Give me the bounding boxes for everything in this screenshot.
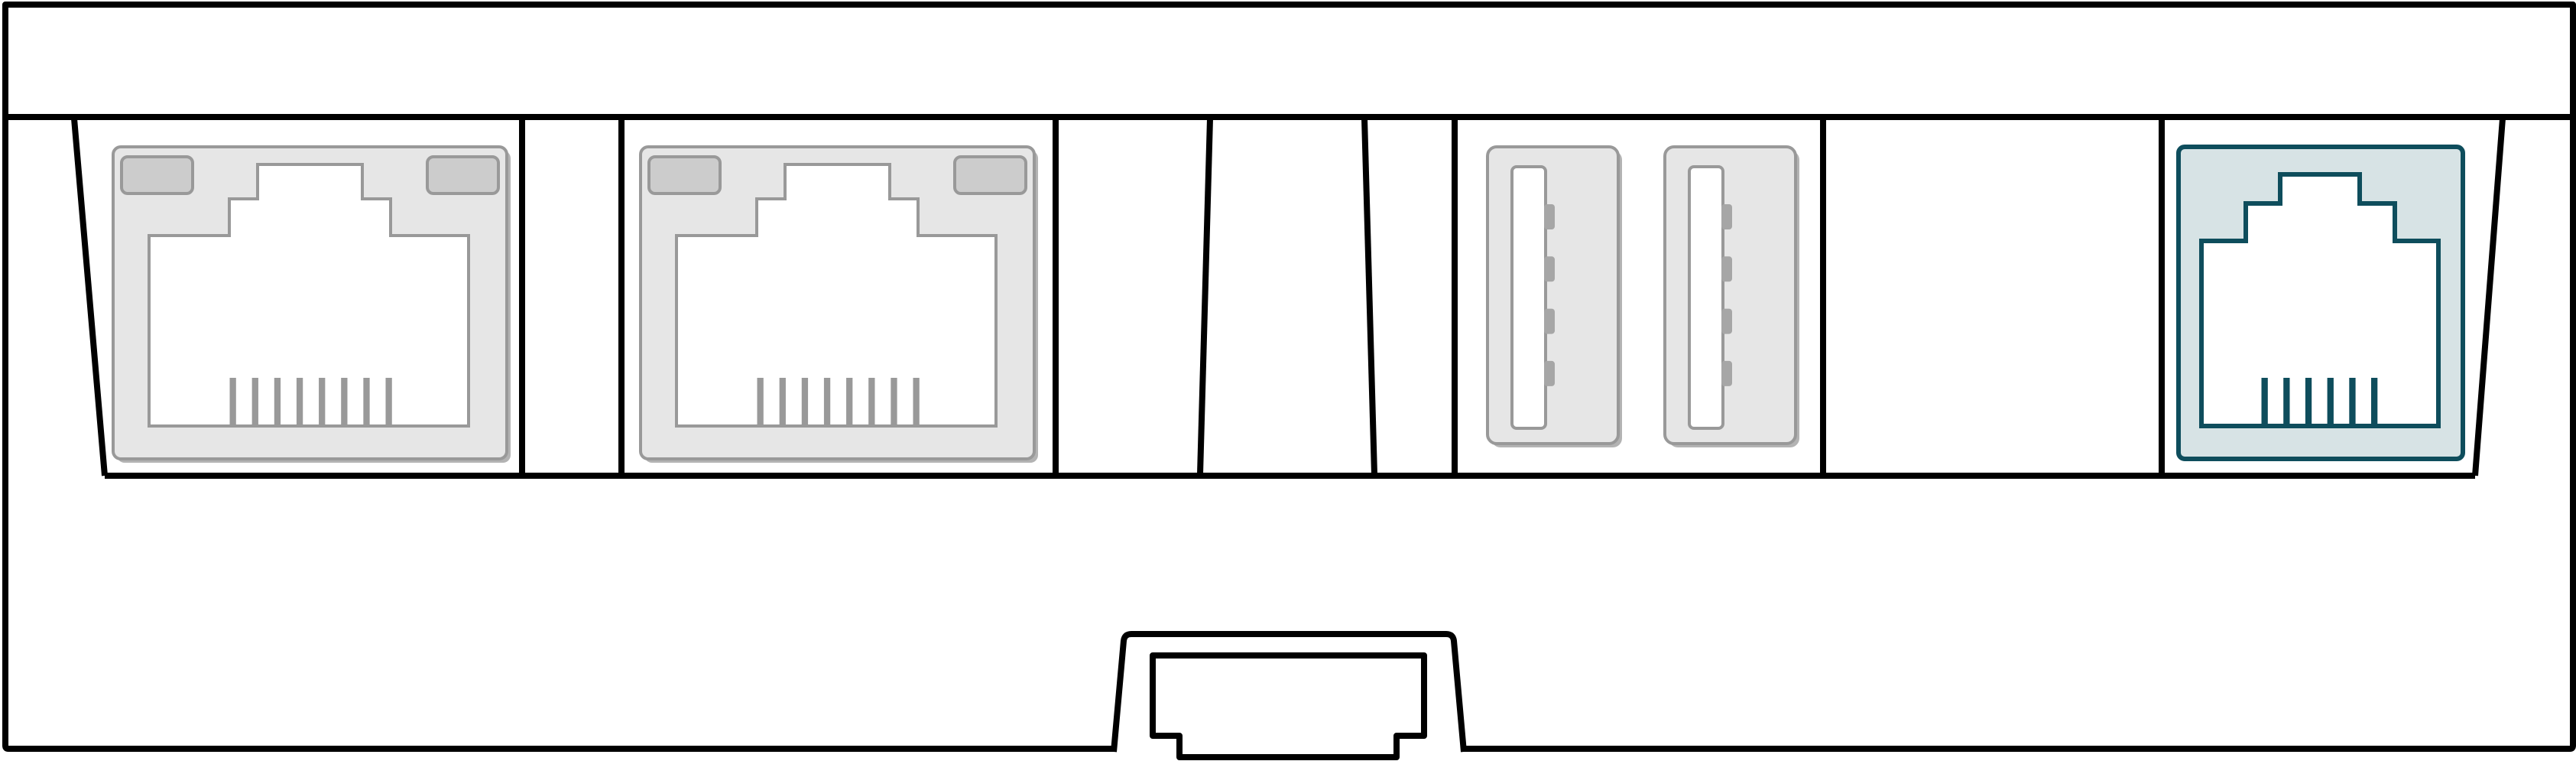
chassis-top-bar — [5, 5, 2573, 117]
pin — [2371, 378, 2377, 426]
pin — [297, 378, 303, 426]
mount-tab-right — [427, 157, 498, 194]
empty-slot-left-edge — [1200, 119, 1210, 474]
pin — [1544, 204, 1555, 229]
pin — [758, 378, 764, 426]
pin — [824, 378, 830, 426]
mount-tab-right — [955, 157, 1026, 194]
pin — [1721, 361, 1732, 386]
usb-bezel — [1488, 147, 1618, 444]
usb-port-1 — [1488, 147, 1622, 447]
pin — [252, 378, 258, 426]
pin — [2305, 378, 2312, 426]
pin — [2262, 378, 2268, 426]
usb-slot — [1512, 167, 1546, 428]
pin — [1721, 309, 1732, 334]
device-rear-panel — [0, 0, 2576, 761]
pin — [868, 378, 874, 426]
pin — [2283, 378, 2289, 426]
console-port — [2179, 147, 2463, 459]
pin — [1544, 309, 1555, 334]
expansion-connector — [1114, 634, 1464, 757]
rear-panel-diagram — [0, 0, 2576, 761]
usb-port-2 — [1665, 147, 1799, 447]
pin — [2328, 378, 2334, 426]
pin — [341, 378, 347, 426]
pin — [846, 378, 852, 426]
mount-tab-left — [649, 157, 720, 194]
pin — [780, 378, 786, 426]
pin — [1544, 256, 1555, 281]
ethernet-port-2 — [641, 147, 1038, 463]
recess-left-slant — [74, 119, 105, 476]
pin — [363, 378, 369, 426]
pin — [2349, 378, 2355, 426]
pin — [274, 378, 281, 426]
pin — [802, 378, 808, 426]
pin — [913, 378, 919, 426]
empty-slot-right-edge — [1364, 119, 1374, 474]
mount-tab-left — [122, 157, 193, 194]
pin — [1721, 256, 1732, 281]
usb-bezel — [1665, 147, 1796, 444]
connector-socket — [1153, 655, 1424, 757]
pin — [230, 378, 236, 426]
pin — [891, 378, 897, 426]
pin — [385, 378, 391, 426]
ethernet-port-1 — [113, 147, 511, 463]
recess-right-slant — [2475, 119, 2503, 476]
pin — [1544, 361, 1555, 386]
pin — [319, 378, 325, 426]
usb-slot — [1689, 167, 1723, 428]
pin — [1721, 204, 1732, 229]
